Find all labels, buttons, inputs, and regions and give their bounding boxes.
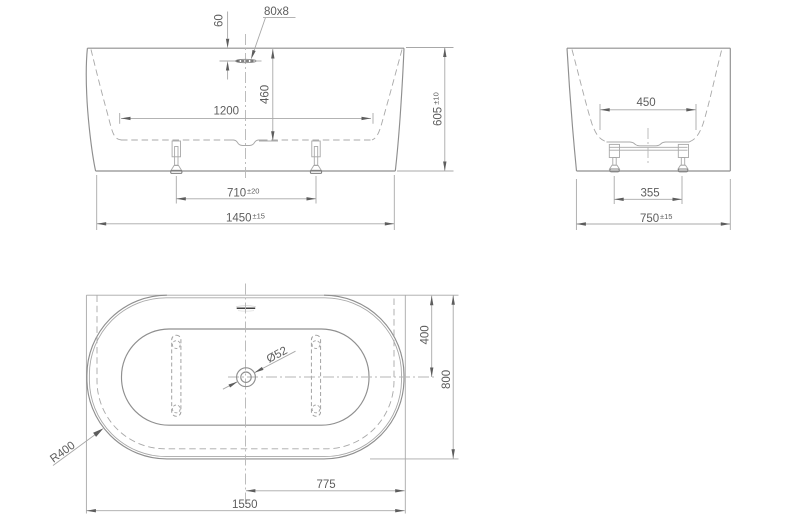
svg-text:60: 60 xyxy=(214,14,226,27)
svg-text:1200: 1200 xyxy=(214,106,240,118)
svg-text:±10: ±10 xyxy=(431,92,440,104)
svg-text:±15: ±15 xyxy=(253,212,265,221)
svg-text:80x8: 80x8 xyxy=(264,6,289,18)
svg-text:450: 450 xyxy=(637,97,656,109)
svg-text:±15: ±15 xyxy=(660,212,672,221)
svg-text:400: 400 xyxy=(419,325,431,344)
svg-text:605: 605 xyxy=(433,107,445,126)
svg-text:750: 750 xyxy=(640,213,659,225)
svg-text:1450: 1450 xyxy=(226,213,252,225)
svg-text:775: 775 xyxy=(317,479,336,491)
svg-text:±20: ±20 xyxy=(247,187,259,196)
svg-text:1550: 1550 xyxy=(232,499,258,511)
svg-text:800: 800 xyxy=(441,370,453,389)
svg-text:460: 460 xyxy=(260,85,272,104)
svg-text:710: 710 xyxy=(227,188,246,200)
svg-text:355: 355 xyxy=(641,188,660,200)
